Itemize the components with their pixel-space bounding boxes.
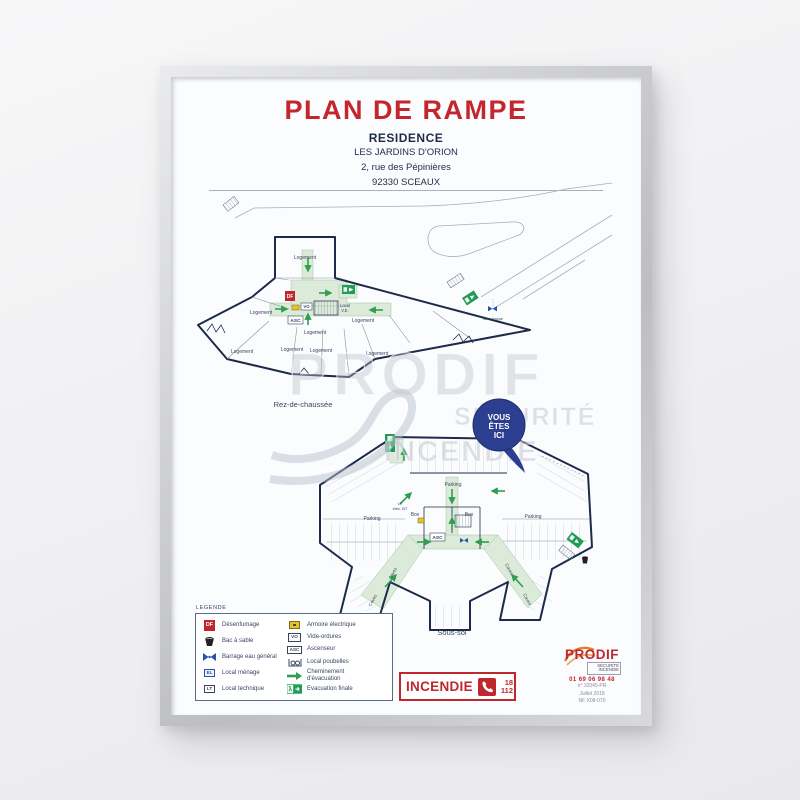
legend-item: Barrage eau général <box>202 651 278 663</box>
building-name: LES JARDINS D'ORION <box>171 147 641 160</box>
legend-column-right: Armoire électrique VO Vide-ordures ASC A… <box>287 619 363 695</box>
address-street: 2, rue des Pépinières <box>171 162 641 175</box>
water-valve-marker <box>488 306 497 311</box>
emergency-numbers: 18 112 <box>501 679 513 695</box>
svg-text:ASC: ASC <box>290 318 301 324</box>
svg-text:Logement: Logement <box>250 310 273 316</box>
exit-sign-ground-core <box>342 285 355 294</box>
emergency-label: INCENDIE <box>406 679 473 694</box>
svg-text:Logement: Logement <box>294 255 317 261</box>
svg-text:VO: VO <box>303 304 310 309</box>
you-are-here-line3: ICI <box>494 431 504 440</box>
legend-item: VO Vide-ordures <box>287 631 363 643</box>
legend-item: DF Désenfumage <box>202 619 278 631</box>
svg-text:Logement: Logement <box>231 349 254 355</box>
garbage-chute-icon: VO <box>287 631 302 643</box>
brand-block: PRODIF SECURITE INCENDIE 01 69 06 98 48 … <box>557 647 627 706</box>
svg-text:Logement: Logement <box>366 351 389 357</box>
sand-bucket-marker <box>582 556 588 563</box>
building-type: RESIDENCE <box>171 131 641 145</box>
legend: LEGENDE DF Désenfumage Bac à sable <box>195 605 393 701</box>
smoke-vent-box: DF <box>285 291 295 301</box>
phone-icon <box>478 678 496 696</box>
svg-text:Logement: Logement <box>352 318 375 324</box>
svg-text:DF: DF <box>287 294 294 300</box>
address-city: 92330 SCEAUX <box>171 177 641 190</box>
legend-item: Armoire électrique <box>287 619 363 631</box>
local-ve-label: Local V.E. <box>340 303 350 313</box>
stairs-ground <box>314 301 338 315</box>
svg-text:Box: Box <box>411 512 420 518</box>
you-are-here-line1: VOUS <box>488 413 511 422</box>
cleaning-room-icon: EL <box>202 667 217 679</box>
legend-title: LEGENDE <box>196 605 393 611</box>
svg-text:Logement: Logement <box>310 348 333 354</box>
sand-bucket-icon <box>202 635 217 647</box>
garbage-chute-box: VO <box>301 303 312 310</box>
legend-item: EL Local ménage <box>202 667 278 679</box>
legend-box: DF Désenfumage Bac à sable Barrage eau <box>195 613 393 701</box>
legend-item: Bac à sable <box>202 635 278 647</box>
evacuation-plan-poster: PLAN DE RAMPE RESIDENCE LES JARDINS D'OR… <box>171 77 641 715</box>
title-divider <box>209 190 603 191</box>
legend-item: Local poubelles <box>287 656 363 668</box>
bin-room-icon <box>287 656 302 668</box>
legend-item: Cheminement d'évacuation <box>287 669 363 683</box>
brand-ref-2: Juillet 2018 <box>557 691 627 699</box>
legend-item: ASC Ascenseur <box>287 644 363 656</box>
svg-text:Parking: Parking <box>525 514 542 520</box>
svg-text:V.E.: V.E. <box>341 308 349 313</box>
floor-name-ground: Rez-de-chaussée <box>274 400 333 409</box>
brand-ref-1: n° 32045-PR <box>557 683 627 691</box>
title-block: PLAN DE RAMPE RESIDENCE LES JARDINS D'OR… <box>171 97 641 189</box>
emergency-strip: INCENDIE 18 112 <box>399 672 516 701</box>
svg-text:Parking: Parking <box>364 516 381 522</box>
electrical-cabinet-icon <box>287 619 302 631</box>
legend-column-left: DF Désenfumage Bac à sable Barrage eau <box>202 619 278 695</box>
page-title: PLAN DE RAMPE <box>171 97 641 124</box>
floor-name-basement: Sous-sol <box>437 628 467 637</box>
svg-text:Logement: Logement <box>304 330 327 336</box>
svg-text:ASC: ASC <box>432 535 443 541</box>
df-box-icon: DF <box>202 619 217 631</box>
you-are-here-line2: ÊTES <box>489 422 511 431</box>
final-exit-icon <box>287 683 302 695</box>
elevator-icon: ASC <box>287 644 302 656</box>
legend-item: LT Local technique <box>202 683 278 695</box>
elevator-box-basement: ASC <box>430 533 445 541</box>
emergency-number-112: 112 <box>501 687 513 695</box>
ramp-hatch-strip <box>447 273 464 288</box>
exit-sign-basement-topleft <box>385 434 395 452</box>
ground-floor-plan: DF VO ASC Local V.E. <box>198 183 612 409</box>
valve-note: sous trappe <box>483 317 503 321</box>
svg-text:élec. BT: élec. BT <box>393 506 408 511</box>
svg-text:Box: Box <box>465 512 474 518</box>
aluminum-frame: PLAN DE RAMPE RESIDENCE LES JARDINS D'OR… <box>160 66 652 726</box>
technical-room-icon: LT <box>202 683 217 695</box>
electrical-cabinet-basement <box>418 518 424 523</box>
brand-ref-3: NF X08-070 <box>557 698 627 706</box>
evacuation-path-icon <box>287 670 302 682</box>
brand-logo: PRODIF <box>557 647 627 662</box>
you-are-here-balloon: VOUS ÊTES ICI <box>466 392 536 482</box>
exit-sign-ramp <box>462 290 479 305</box>
svg-text:Parking: Parking <box>445 482 462 488</box>
water-valve-icon <box>202 651 217 663</box>
elevator-box-ground: ASC <box>288 316 303 324</box>
street-entry-hatch <box>223 196 239 211</box>
photo-wall: { "poster": { "title": "PLAN DE RAMPE", … <box>0 0 800 800</box>
legend-item: Evacuation finale <box>287 683 363 695</box>
svg-text:Logement: Logement <box>281 347 304 353</box>
electrical-cabinet-marker <box>292 305 299 310</box>
